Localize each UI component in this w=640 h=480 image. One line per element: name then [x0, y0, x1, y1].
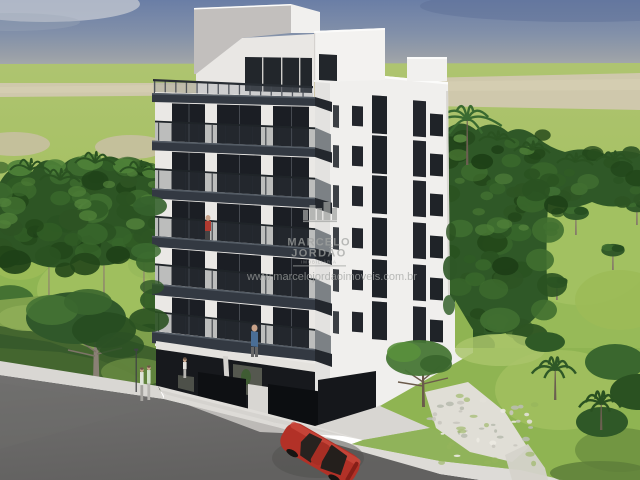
svg-text:JORDÃO: JORDÃO — [291, 247, 346, 260]
svg-text:www.marcelojordaoimoveis.com.b: www.marcelojordaoimoveis.com.br — [246, 271, 417, 283]
svg-text:IMOBILIÁRIA: IMOBILIÁRIA — [301, 260, 337, 265]
